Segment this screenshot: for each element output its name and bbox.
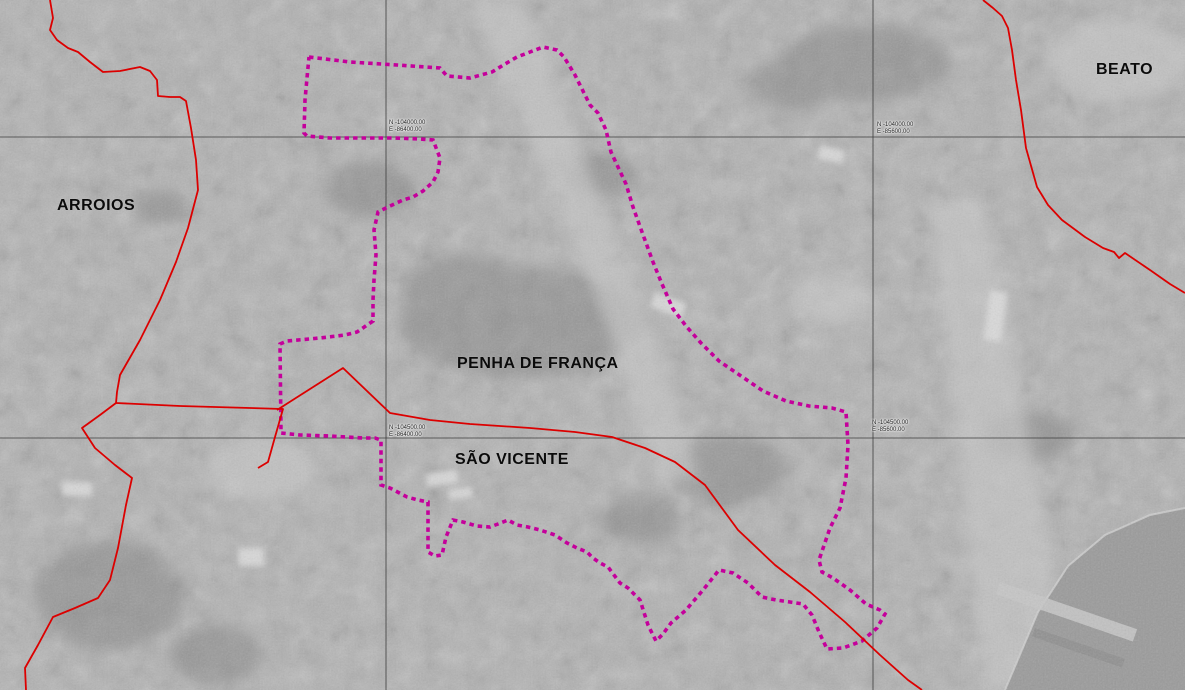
- grid-easting-value: E -85600.00: [877, 129, 913, 136]
- region-label-beato: BEATO: [1096, 61, 1153, 79]
- grid-coordinate-label: N -104500.00 E -86400.00: [389, 425, 425, 439]
- grid-coordinate-label: N -104000.00 E -86400.00: [389, 120, 425, 134]
- region-label-sao-vicente: SÃO VICENTE: [455, 451, 569, 469]
- grid-easting-value: E -86400.00: [389, 127, 425, 134]
- grid-coordinate-label: N -104500.00 E -85600.00: [872, 420, 908, 434]
- grid-northing-value: N -104500.00: [389, 425, 425, 432]
- grid-easting-value: E -85600.00: [872, 427, 908, 434]
- grid-coordinate-label: N -104000.00 E -85600.00: [877, 122, 913, 136]
- grid-northing-value: N -104000.00: [389, 120, 425, 127]
- grid-easting-value: E -86400.00: [389, 432, 425, 439]
- map-canvas: ARROIOS PENHA DE FRANÇA SÃO VICENTE BEAT…: [0, 0, 1185, 690]
- region-label-arroios: ARROIOS: [57, 197, 135, 215]
- grid-northing-value: N -104500.00: [872, 420, 908, 427]
- grid-northing-value: N -104000.00: [877, 122, 913, 129]
- aerial-photo-layer: [0, 0, 1185, 690]
- region-label-penha-de-franca: PENHA DE FRANÇA: [457, 355, 619, 373]
- map-graphics: [0, 0, 1185, 690]
